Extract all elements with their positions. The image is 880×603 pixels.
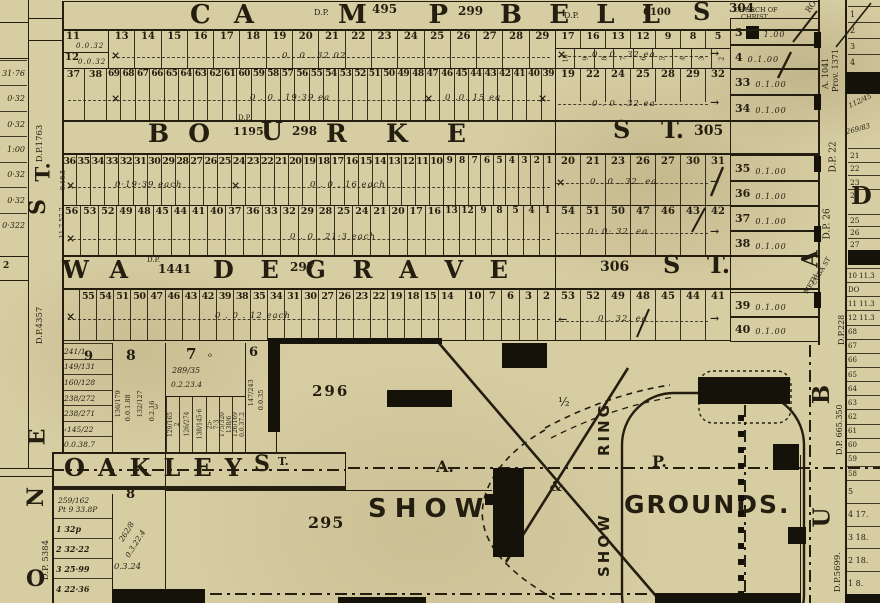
grid-line: [52, 452, 345, 454]
building-fill: [773, 444, 799, 470]
grid-line: [0, 280, 28, 281]
grid-line: [28, 40, 62, 41]
grid-line: [165, 490, 492, 491]
grid-line: [443, 155, 444, 255]
grid-line: [0, 476, 52, 477]
building-fill: [848, 250, 880, 265]
building-fill: [845, 594, 880, 603]
grid-line: [62, 1, 64, 452]
survey-map: CA MP BELL D.P. 495 299 D.P. S 6100 304 …: [0, 0, 880, 603]
building-fill: [698, 377, 790, 404]
survey-star-mark: ×: [66, 179, 75, 192]
survey-arrow-mark: →: [710, 312, 719, 325]
building-fill: [493, 468, 524, 557]
survey-arrow-mark: →: [710, 175, 719, 188]
survey-star-mark: ×: [231, 179, 240, 192]
building-fill: [112, 589, 205, 603]
grid-line: [62, 288, 818, 290]
grid-line: [0, 256, 28, 257]
grid-line: [62, 1, 818, 2]
grid-line: [0, 58, 28, 59]
grid-line: [62, 205, 730, 206]
building-fill: [814, 156, 821, 172]
survey-arrow-mark: →: [710, 225, 719, 238]
grid-line: [62, 52, 108, 53]
building-fill: [655, 593, 801, 603]
building-fill: [502, 343, 547, 368]
survey-star-mark: ×: [538, 92, 547, 105]
grid-line: [62, 29, 818, 31]
building-fill: [814, 32, 821, 48]
survey-star-mark: ×: [66, 232, 75, 245]
building-fill: [387, 390, 452, 407]
building-fill: [814, 226, 821, 242]
grid-line: [166, 396, 245, 397]
building-fill: [814, 292, 821, 308]
building-fill: [338, 597, 426, 603]
survey-star-mark: ×: [556, 176, 565, 189]
building-fill: [276, 338, 442, 344]
building-fill: [268, 338, 280, 432]
building-fill: [788, 527, 806, 544]
survey-star-mark: ×: [111, 49, 120, 62]
grid-line: [800, 455, 801, 595]
building-fill: [814, 94, 821, 110]
grid-line: [28, 18, 62, 19]
grid-line: [28, 0, 29, 468]
grid-line: [62, 153, 818, 155]
building-fill: [846, 72, 880, 94]
grid-line: [555, 48, 730, 49]
grid-line: [52, 452, 54, 603]
grid-line: [465, 290, 466, 340]
survey-arrow-mark: ←: [558, 313, 567, 326]
grid-line: [112, 494, 113, 603]
grid-line: [62, 68, 730, 69]
grid-line: [276, 432, 277, 452]
survey-star-mark: ×: [424, 92, 433, 105]
grid-line: [0, 22, 28, 23]
grid-line: [108, 30, 109, 68]
grid-line: [345, 452, 346, 490]
grid-line: [165, 343, 166, 603]
building-fill: [485, 494, 496, 505]
survey-star-mark: ×: [111, 92, 120, 105]
survey-arrow-mark: →: [710, 47, 719, 60]
grid-line: [62, 120, 818, 122]
grid-line: [730, 18, 731, 340]
survey-star-mark: ×: [66, 310, 75, 323]
grid-line: [0, 468, 52, 469]
grid-line: [62, 255, 818, 257]
survey-star-mark: ×: [557, 48, 566, 61]
grid-line: [245, 343, 246, 452]
map-lines-overlay: [0, 0, 880, 603]
grid-line: [112, 343, 113, 452]
survey-arrow-mark: →: [710, 96, 719, 109]
